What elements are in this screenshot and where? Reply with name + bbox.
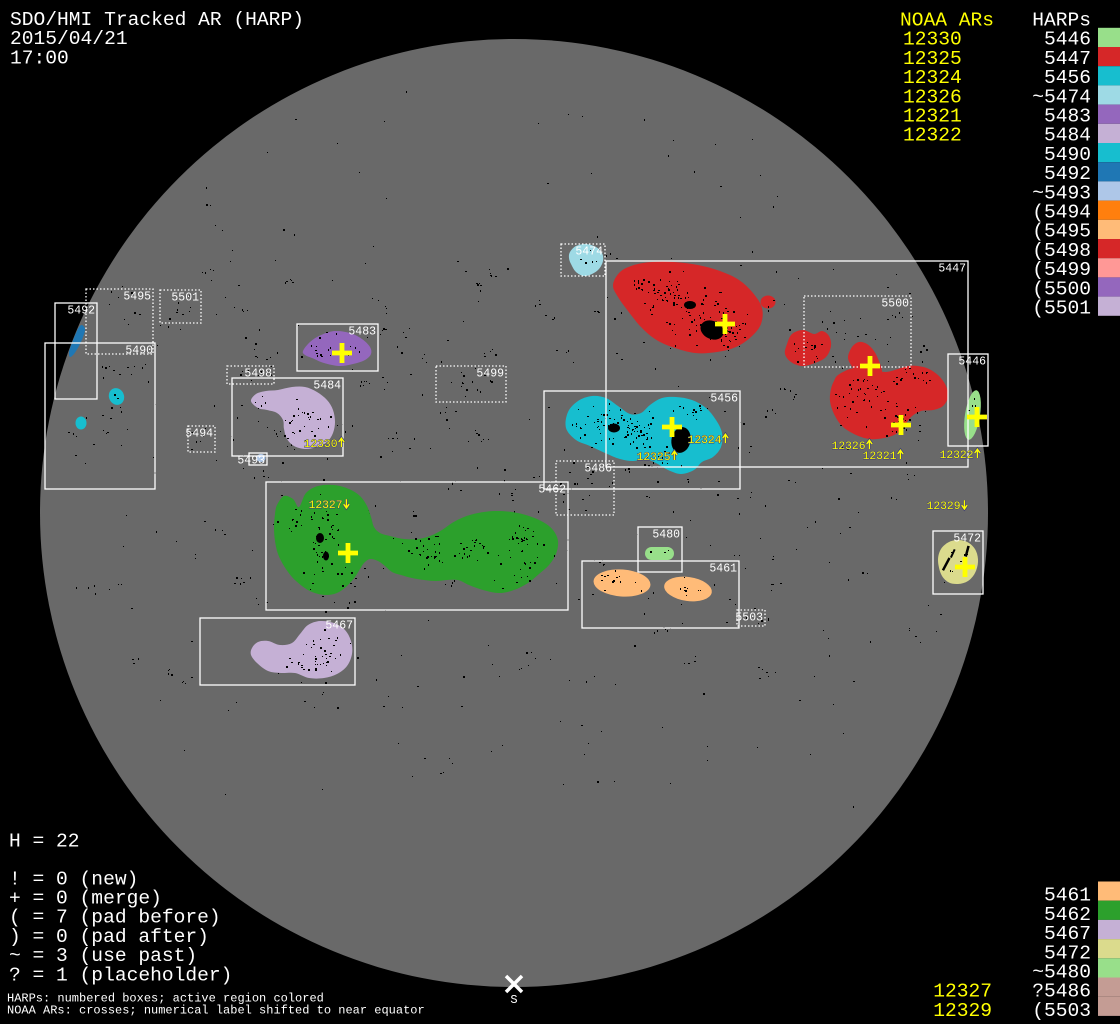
svg-text:5462: 5462 bbox=[538, 484, 566, 497]
svg-text:S: S bbox=[510, 993, 517, 1007]
svg-text:5474: 5474 bbox=[575, 246, 603, 259]
svg-text:12329: 12329 bbox=[927, 501, 961, 513]
svg-text:5494: 5494 bbox=[185, 428, 213, 441]
svg-text:5467: 5467 bbox=[325, 620, 353, 633]
svg-text:5501: 5501 bbox=[171, 292, 199, 305]
svg-text:12325: 12325 bbox=[637, 452, 671, 464]
svg-text:5500: 5500 bbox=[881, 298, 909, 311]
svg-text:5472: 5472 bbox=[953, 533, 981, 546]
svg-text:5446: 5446 bbox=[958, 356, 986, 369]
svg-text:5492: 5492 bbox=[67, 305, 95, 318]
svg-text:5484: 5484 bbox=[313, 380, 341, 393]
svg-text:12322: 12322 bbox=[903, 125, 962, 147]
svg-text:(5501: (5501 bbox=[1032, 298, 1091, 320]
svg-text:? = 1 (placeholder): ? = 1 (placeholder) bbox=[9, 964, 232, 986]
svg-text:12321: 12321 bbox=[863, 451, 897, 463]
svg-text:5461: 5461 bbox=[709, 563, 737, 576]
svg-text:5483: 5483 bbox=[348, 326, 376, 339]
svg-text:12326: 12326 bbox=[832, 441, 866, 453]
svg-text:5493: 5493 bbox=[237, 455, 265, 468]
svg-text:5498: 5498 bbox=[244, 368, 272, 381]
svg-text:12330: 12330 bbox=[304, 439, 338, 451]
svg-text:17:00: 17:00 bbox=[10, 47, 69, 69]
svg-text:H = 22: H = 22 bbox=[9, 831, 80, 853]
svg-text:5495: 5495 bbox=[123, 291, 151, 304]
svg-text:5456: 5456 bbox=[710, 393, 738, 406]
svg-text:5503: 5503 bbox=[735, 612, 763, 625]
svg-text:NOAA ARs: crosses; numerical l: NOAA ARs: crosses; numerical label shift… bbox=[7, 1004, 425, 1018]
svg-text:12329: 12329 bbox=[933, 1000, 992, 1022]
svg-text:5486: 5486 bbox=[584, 463, 612, 476]
svg-text:5480: 5480 bbox=[652, 529, 680, 542]
svg-text:(5503: (5503 bbox=[1032, 1000, 1091, 1022]
svg-text:12327: 12327 bbox=[309, 500, 343, 512]
svg-text:5490: 5490 bbox=[125, 345, 153, 358]
svg-text:12322: 12322 bbox=[940, 450, 974, 462]
svg-text:12324: 12324 bbox=[688, 435, 722, 447]
svg-text:5447: 5447 bbox=[938, 263, 966, 276]
svg-text:5499: 5499 bbox=[476, 368, 504, 381]
